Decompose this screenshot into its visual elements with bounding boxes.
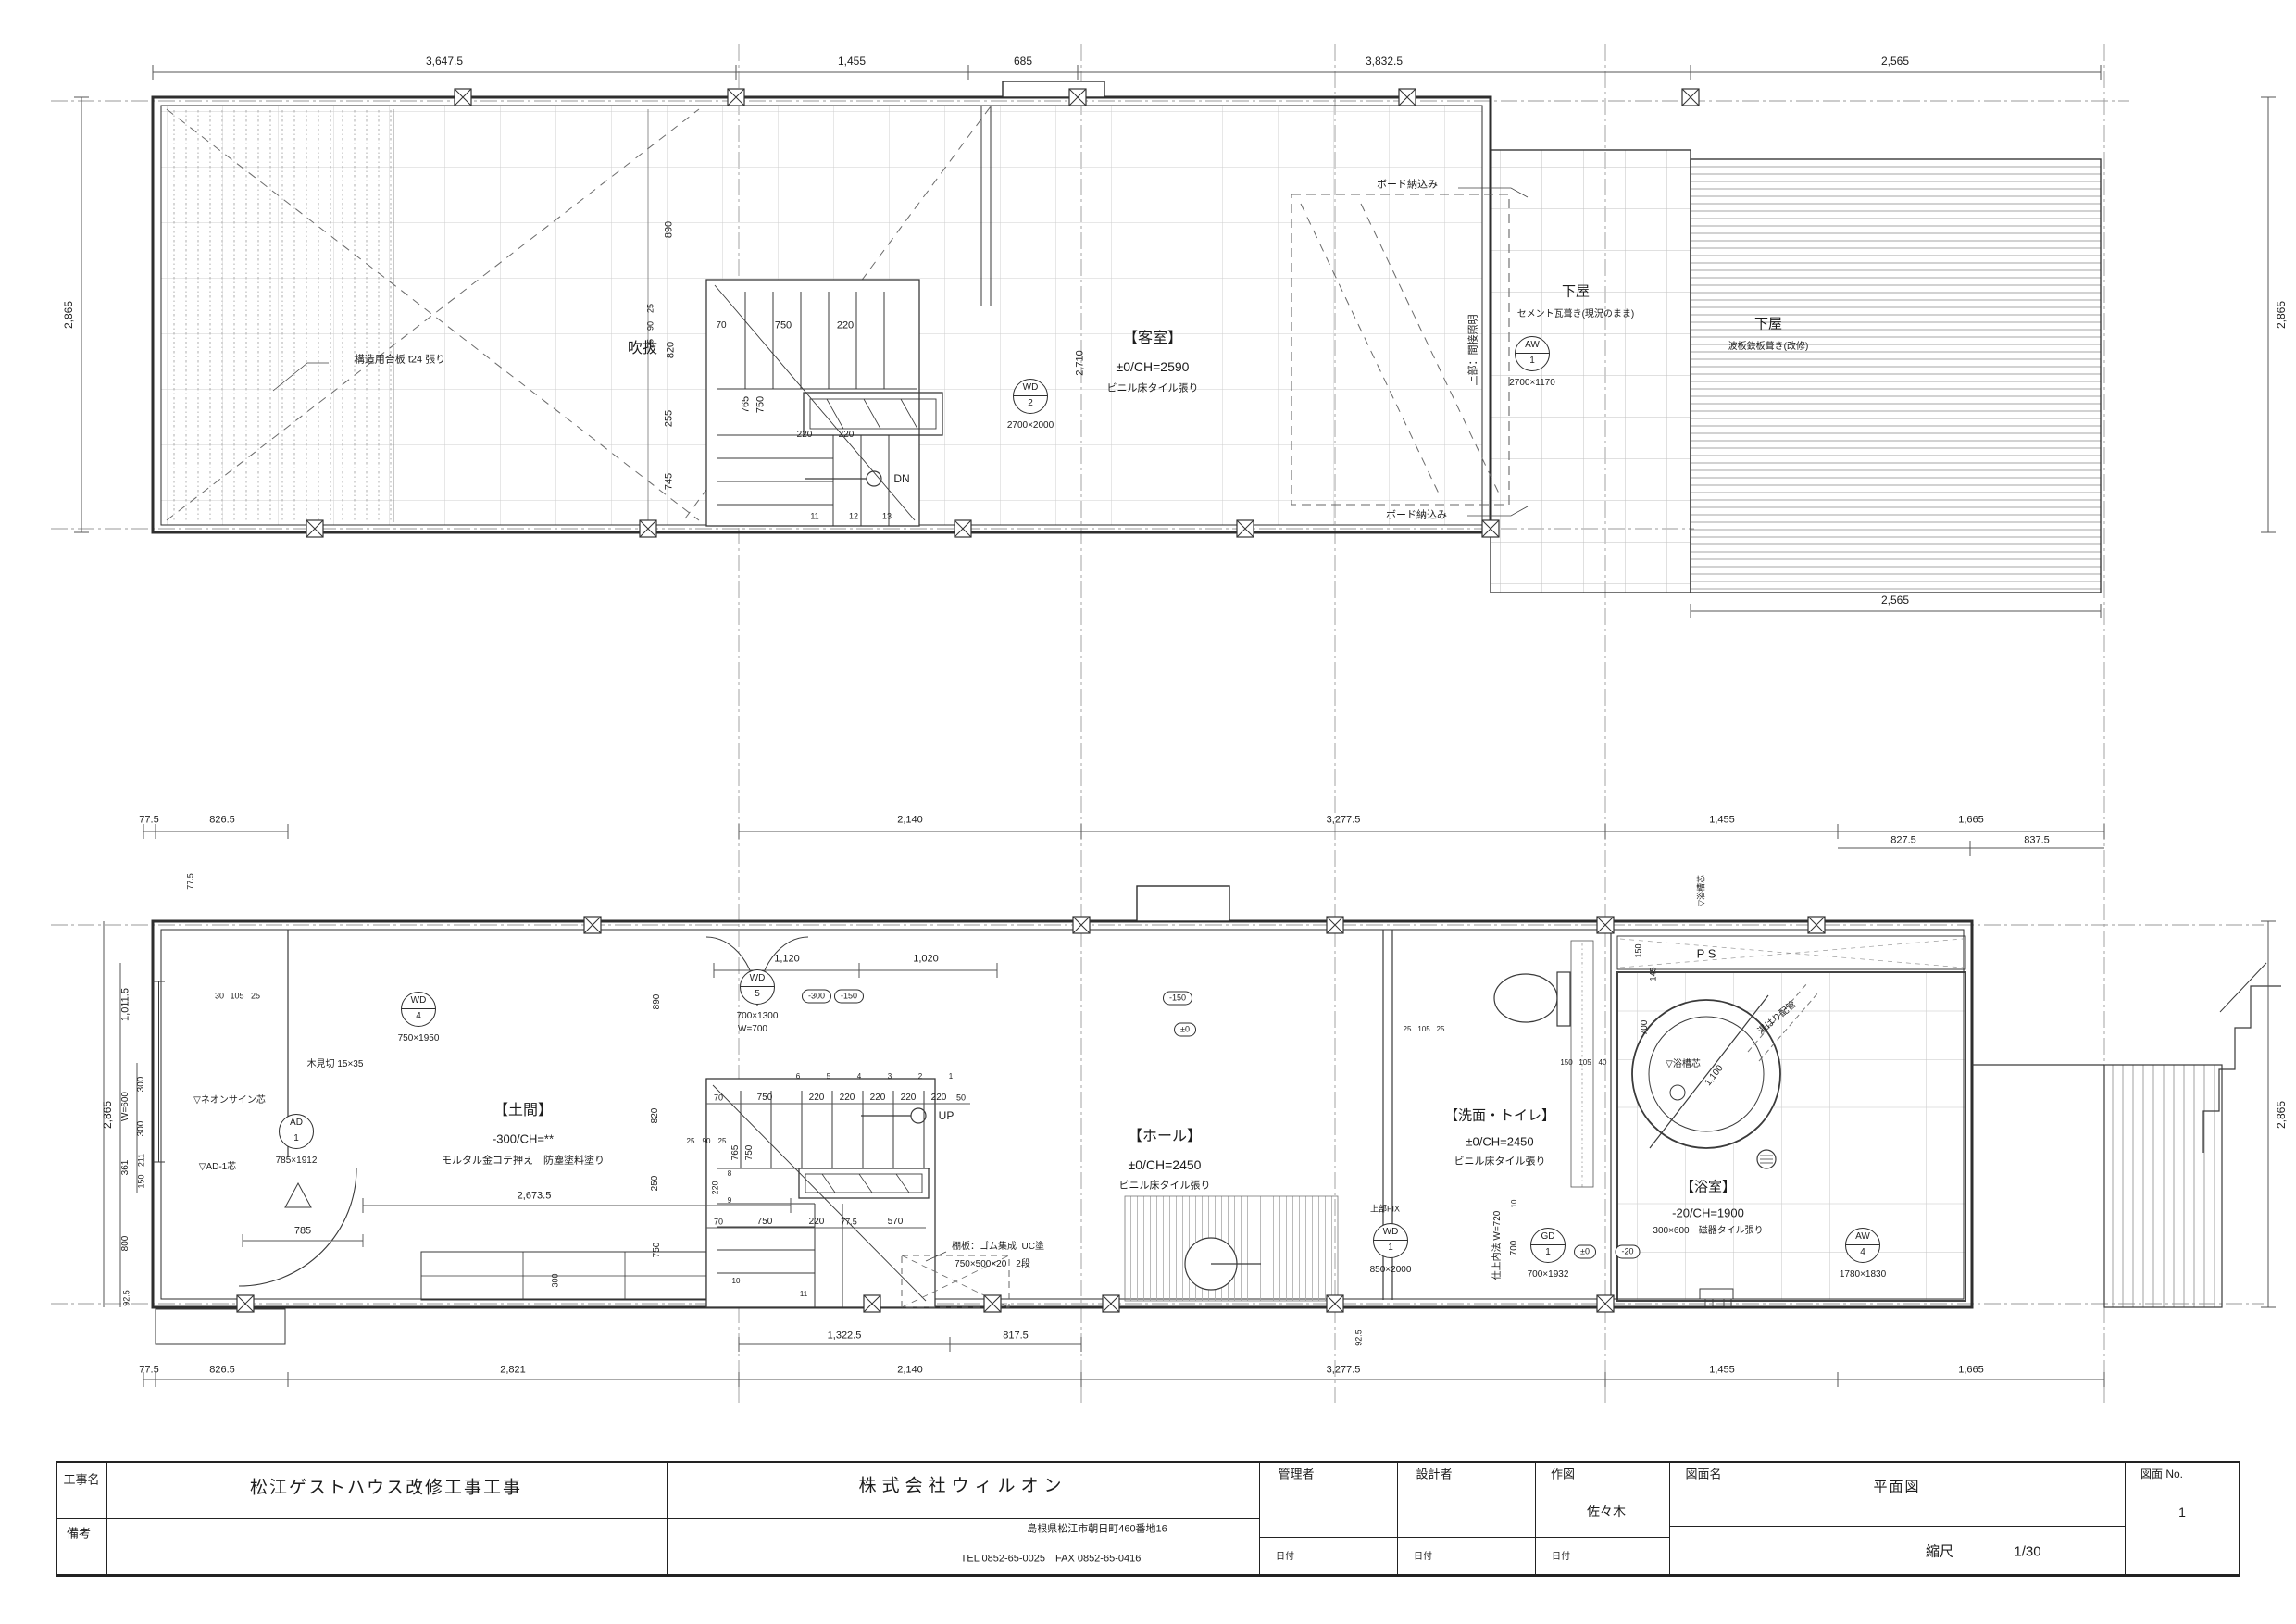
drafter-name: 佐々木 [1587, 1505, 1626, 1518]
project-name-label: 工事名 [63, 1474, 99, 1486]
company-name: 株式会社ウィルオン [858, 1478, 1067, 1495]
title-border [1259, 1537, 1669, 1538]
title-border [1397, 1461, 1398, 1576]
title-border [2125, 1461, 2126, 1576]
title-border [56, 1461, 57, 1576]
company-tel: TEL 0852-65-0025 FAX 0852-65-0416 [961, 1555, 1142, 1565]
remarks-label: 備考 [67, 1528, 91, 1540]
date-label-3: 日付 [1552, 1553, 1570, 1562]
scale-label: 縮尺 [1926, 1545, 1953, 1559]
floor-plan-sheet: 3,647.51,4556853,832.52,5652,8652,8652,5… [0, 0, 2296, 1624]
drafter-label: 作図 [1551, 1468, 1575, 1480]
floor-level-tag: ±0 [1174, 1023, 1196, 1037]
title-border [56, 1461, 2240, 1463]
sheet-no: 1 [2178, 1505, 2186, 1518]
title-border [1535, 1461, 1536, 1576]
floor-level-tag: -20 [1615, 1245, 1640, 1259]
title-border [667, 1461, 668, 1576]
title-border [106, 1461, 107, 1576]
drawing-title-label: 図面名 [1685, 1468, 1721, 1480]
date-label-2: 日付 [1414, 1553, 1432, 1562]
scale-value: 1/30 [2014, 1545, 2040, 1559]
title-border [56, 1518, 1259, 1519]
floor-level-tag: -150 [834, 990, 864, 1004]
drawing-title: 平面図 [1873, 1480, 1920, 1494]
manager-label: 管理者 [1278, 1468, 1314, 1480]
floor-level-tag: ±0 [1574, 1245, 1596, 1259]
project-name: 松江ゲストハウス改修工事工事 [250, 1480, 522, 1497]
title-border [1259, 1461, 1260, 1576]
title-border [2239, 1461, 2240, 1576]
company-address: 島根県松江市朝日町460番地16 [1027, 1525, 1167, 1535]
sheet-no-label: 図面 No. [2140, 1468, 2183, 1480]
title-border [1669, 1526, 2125, 1527]
level-tag-layer: -300-150-150±0±0-20 [0, 0, 2296, 1624]
title-border [1669, 1461, 1670, 1576]
designer-label: 設計者 [1416, 1468, 1452, 1480]
title-border [56, 1574, 2240, 1577]
floor-level-tag: -300 [802, 990, 831, 1004]
floor-level-tag: -150 [1163, 992, 1192, 1006]
date-label-1: 日付 [1276, 1553, 1294, 1562]
